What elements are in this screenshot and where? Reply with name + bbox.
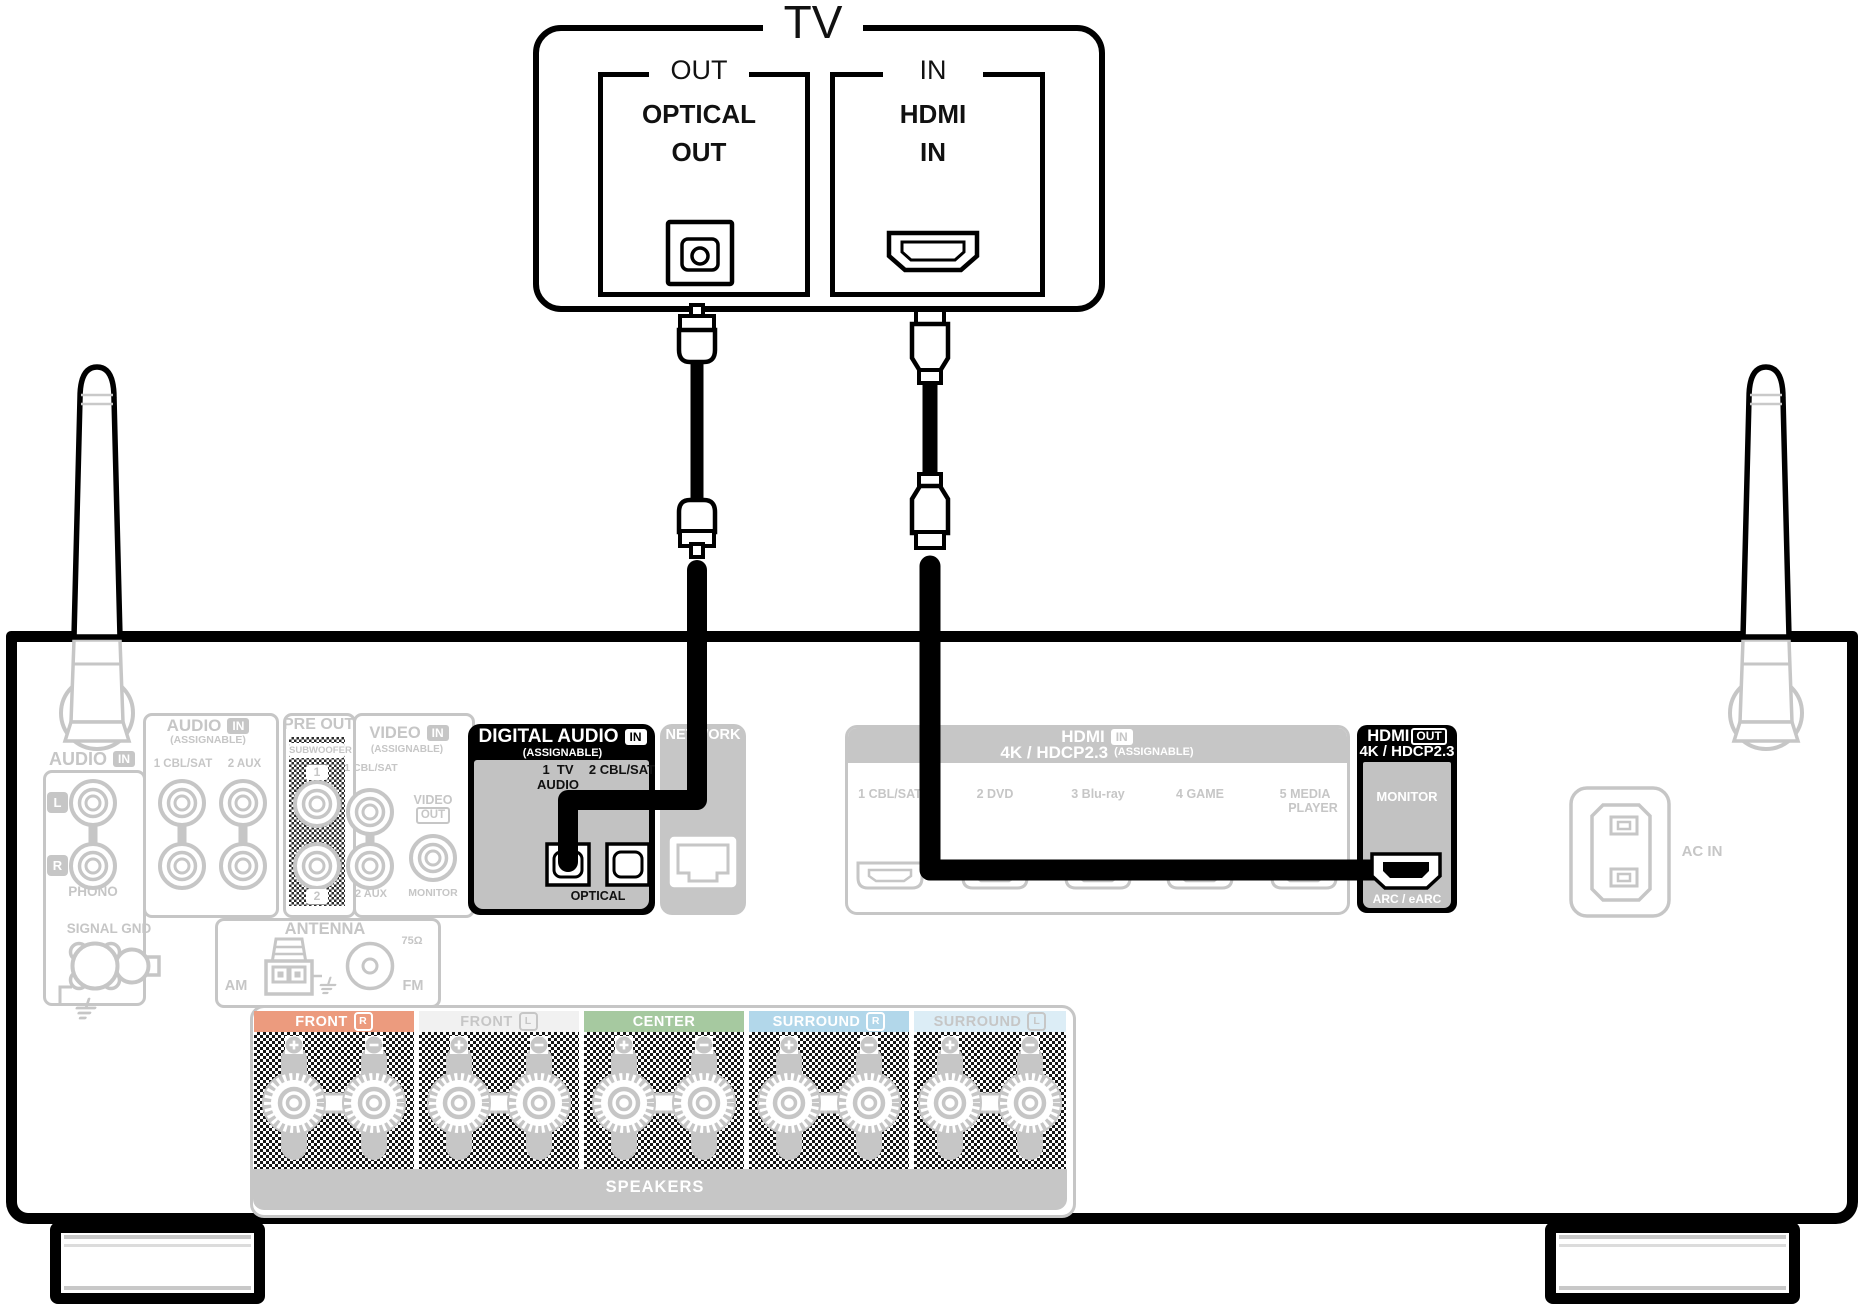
speaker-label: SURROUND bbox=[934, 1014, 1022, 1030]
hdmi-plug-bottom bbox=[912, 474, 948, 548]
speaker-terminal-texture bbox=[419, 1032, 579, 1169]
input-label: 1 CBL/SAT bbox=[342, 763, 400, 775]
speaker-terminal-texture bbox=[914, 1032, 1066, 1169]
speaker-chip: R bbox=[354, 1012, 373, 1031]
section-title: AUDIO bbox=[167, 716, 222, 735]
input-label: 1 CBL/SAT bbox=[147, 758, 219, 771]
tv-optical-label-2: OUT bbox=[609, 138, 789, 167]
optical-input-2-label: 2 CBL/SAT bbox=[586, 763, 658, 778]
optical-input-1-label2: AUDIO bbox=[528, 778, 588, 793]
hdmi-input-label-2: 2 DVD bbox=[967, 787, 1023, 801]
foot-line bbox=[64, 1235, 251, 1239]
video-subtitle: (ASSIGNABLE) bbox=[351, 744, 463, 755]
speaker-chip: R bbox=[866, 1012, 885, 1031]
digital-audio-header: DIGITAL AUDIO IN bbox=[470, 726, 655, 747]
section-title: VIDEO bbox=[369, 724, 420, 742]
subwoofer-1-label: 1 bbox=[306, 765, 328, 780]
hdmi-input-label-4: 4 GAME bbox=[1167, 787, 1233, 801]
tv-hdmi-label-1: HDMI bbox=[843, 100, 1023, 129]
tv-optical-label-1: OPTICAL bbox=[609, 100, 789, 129]
foot-line bbox=[1559, 1235, 1786, 1239]
optical-input-1-label: 1 TV bbox=[528, 763, 588, 778]
hdmi-input-label-3: 3 Blu-ray bbox=[1063, 787, 1133, 801]
in-badge: IN bbox=[227, 718, 249, 734]
section-title: AUDIO bbox=[49, 749, 107, 769]
video-out-title: VIDEO bbox=[407, 793, 459, 807]
speaker-label: FRONT bbox=[295, 1014, 347, 1030]
foot-line bbox=[64, 1286, 251, 1290]
in-badge: IN bbox=[427, 725, 449, 741]
hdmi-input-label-5: 5 MEDIA bbox=[1272, 787, 1338, 801]
in-badge: IN bbox=[625, 729, 647, 745]
speaker-terminal-texture bbox=[749, 1032, 909, 1169]
speaker-band-center: CENTER bbox=[584, 1011, 744, 1032]
speaker-chip: L bbox=[1027, 1012, 1046, 1031]
out-badge: OUT bbox=[416, 807, 450, 824]
video-out-badge-row: OUT bbox=[407, 807, 459, 824]
foot-line bbox=[1559, 1244, 1786, 1247]
hdmi-out-body bbox=[1363, 762, 1451, 908]
speaker-band-surround-l: SURROUNDL bbox=[914, 1011, 1066, 1032]
right-channel-badge: R bbox=[47, 855, 68, 876]
pre-out-title: PRE OUT bbox=[283, 716, 350, 734]
monitor-caption: MONITOR bbox=[403, 888, 463, 900]
optical-caption: OPTICAL bbox=[560, 889, 636, 903]
audio-assignable-header: AUDIO IN bbox=[143, 716, 273, 735]
foot-line bbox=[1559, 1286, 1786, 1290]
speaker-band-front-r: FRONTR bbox=[254, 1011, 414, 1032]
signal-gnd-label: SIGNAL GND bbox=[60, 921, 158, 936]
tv-out-tab: OUT bbox=[649, 52, 749, 88]
monitor-label: MONITOR bbox=[1372, 790, 1442, 805]
speaker-label: SURROUND bbox=[773, 1014, 861, 1030]
network-title: NETWORK bbox=[660, 727, 746, 743]
subwoofer-texture bbox=[289, 737, 345, 906]
network-section bbox=[660, 724, 746, 915]
arc-earc-label: ARC / eARC bbox=[1368, 893, 1446, 906]
tv-hdmi-label-2: IN bbox=[843, 138, 1023, 167]
am-label: AM bbox=[220, 978, 252, 994]
hdmi-input-label-1: 1 CBL/SAT bbox=[855, 787, 925, 801]
input-label: 2 AUX bbox=[347, 888, 395, 900]
fm-label: FM bbox=[397, 978, 429, 994]
section-title: DIGITAL AUDIO bbox=[478, 726, 618, 747]
fm-75ohm-label: 75Ω bbox=[396, 935, 428, 947]
assignable-subtitle: (ASSIGNABLE) bbox=[143, 735, 273, 747]
hdcp-label: 4K / HDCP2.3 bbox=[1000, 743, 1108, 762]
speakers-title: SPEAKERS bbox=[560, 1178, 750, 1196]
connection-diagram: FRONTR FRONTL CENTER SURROUNDR SURROUNDL bbox=[0, 0, 1870, 1308]
optical-plug-bottom bbox=[679, 500, 715, 557]
hdmi-input-label-5b: PLAYER bbox=[1283, 801, 1343, 815]
assignable-label: (ASSIGNABLE) bbox=[1114, 746, 1193, 758]
antenna-title: ANTENNA bbox=[255, 920, 395, 938]
digital-audio-subtitle: (ASSIGNABLE) bbox=[470, 747, 655, 759]
in-badge: IN bbox=[113, 751, 135, 767]
foot-line bbox=[64, 1244, 251, 1247]
subwoofer-label: SUBWOOFER bbox=[289, 743, 345, 758]
speaker-label: FRONT bbox=[460, 1014, 512, 1030]
subwoofer-2-label: 2 bbox=[306, 889, 328, 904]
optical-plug-top bbox=[679, 305, 715, 362]
ac-in-label: AC IN bbox=[1676, 844, 1728, 861]
speaker-band-surround-r: SURROUNDR bbox=[749, 1011, 909, 1032]
speaker-chip: L bbox=[519, 1012, 538, 1031]
speaker-band-front-l: FRONTL bbox=[419, 1011, 579, 1032]
audio-phono-header: AUDIO IN bbox=[42, 749, 142, 769]
speaker-label: CENTER bbox=[633, 1014, 696, 1030]
phono-caption: PHONO bbox=[53, 884, 133, 899]
input-label: 2 AUX bbox=[217, 758, 272, 771]
hdmi-plug-top bbox=[912, 310, 948, 383]
tv-title: TV bbox=[763, 0, 863, 50]
left-channel-badge: L bbox=[47, 792, 68, 813]
speaker-terminal-texture bbox=[584, 1032, 744, 1169]
hdmi-out-hdcp: 4K / HDCP2.3 bbox=[1358, 744, 1456, 761]
hdmi-in-header-row2: 4K / HDCP2.3 (ASSIGNABLE) bbox=[952, 743, 1242, 762]
speaker-terminal-texture bbox=[254, 1032, 414, 1169]
video-header: VIDEO IN bbox=[353, 724, 465, 742]
tv-in-tab: IN bbox=[883, 52, 983, 88]
